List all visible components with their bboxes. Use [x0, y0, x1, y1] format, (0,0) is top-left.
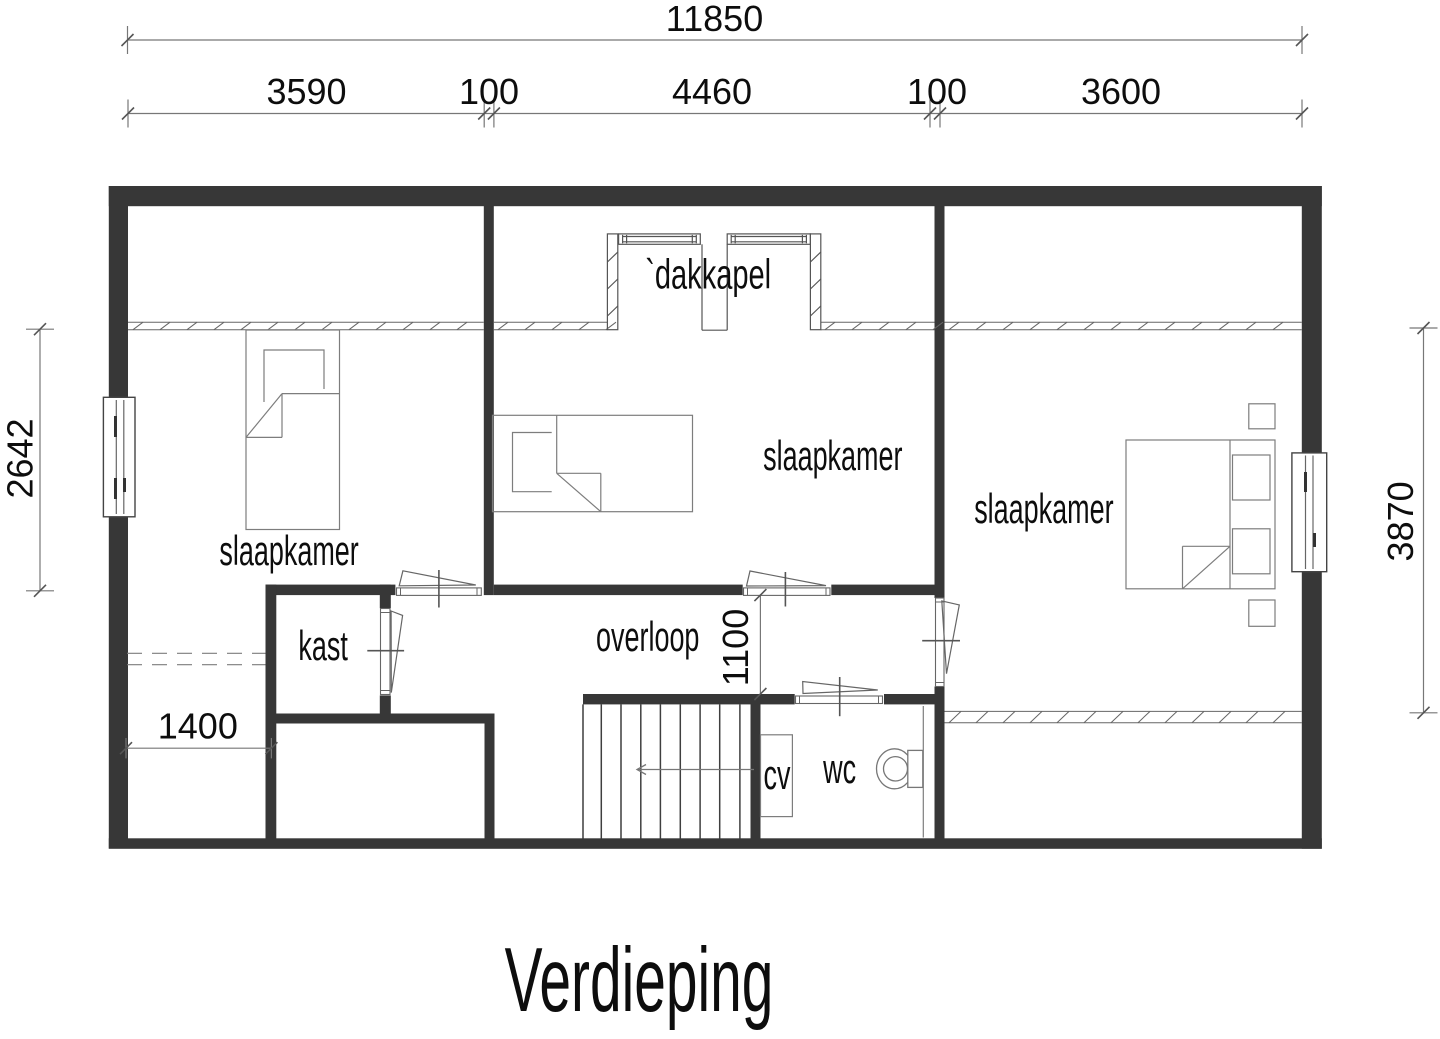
svg-text:slaapkamer: slaapkamer — [763, 433, 903, 479]
svg-text:`dakkapel: `dakkapel — [645, 251, 771, 297]
svg-text:kast: kast — [298, 623, 348, 669]
svg-text:2642: 2642 — [0, 418, 40, 498]
svg-text:1100: 1100 — [715, 609, 756, 686]
svg-text:Verdieping: Verdieping — [505, 929, 774, 1031]
svg-text:1400: 1400 — [158, 705, 238, 746]
svg-text:100: 100 — [907, 71, 967, 112]
svg-text:11850: 11850 — [666, 0, 763, 39]
svg-text:100: 100 — [459, 71, 519, 112]
svg-text:overloop: overloop — [596, 614, 699, 660]
svg-text:3600: 3600 — [1081, 71, 1161, 112]
svg-text:wc: wc — [822, 746, 856, 792]
svg-text:4460: 4460 — [672, 71, 752, 112]
svg-text:3870: 3870 — [1380, 481, 1421, 561]
svg-text:3590: 3590 — [266, 71, 346, 112]
svg-text:slaapkamer: slaapkamer — [974, 486, 1114, 532]
svg-text:cv: cv — [764, 752, 791, 798]
svg-text:slaapkamer: slaapkamer — [219, 528, 359, 574]
